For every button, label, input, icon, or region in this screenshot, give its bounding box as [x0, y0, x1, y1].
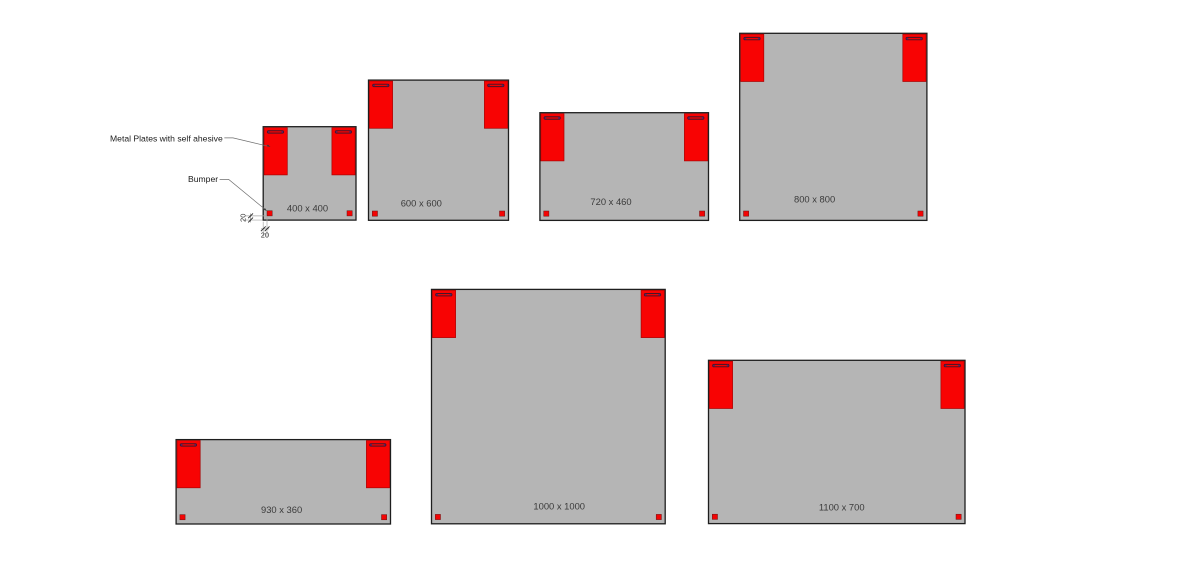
svg-text:Bumper: Bumper: [188, 174, 218, 184]
svg-text:930 x 360: 930 x 360: [261, 504, 302, 515]
svg-text:1100 x 700: 1100 x 700: [819, 502, 865, 513]
svg-text:400 x 400: 400 x 400: [287, 202, 328, 213]
svg-text:Metal Plates with self ahesive: Metal Plates with self ahesive: [110, 134, 223, 144]
svg-text:800 x 800: 800 x 800: [794, 194, 835, 205]
svg-text:1000 x 1000: 1000 x 1000: [533, 501, 585, 512]
svg-text:720 x 460: 720 x 460: [590, 196, 631, 207]
svg-text:20: 20: [239, 214, 248, 222]
svg-text:600 x 600: 600 x 600: [401, 197, 442, 208]
svg-text:20: 20: [261, 230, 269, 239]
